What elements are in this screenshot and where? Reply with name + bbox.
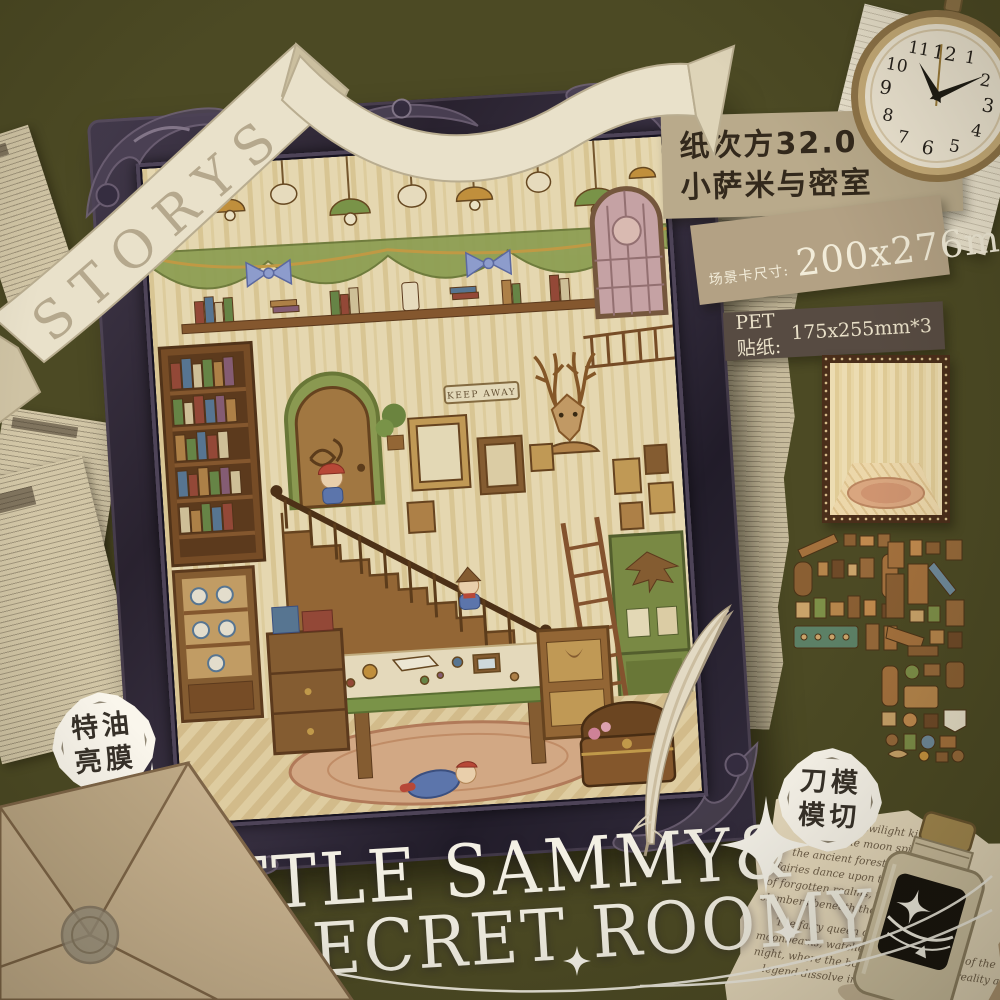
ribbon-banner-text: STORYS [21, 101, 299, 354]
scene-card-preview [822, 355, 950, 523]
sticker-sheet-2 [884, 538, 968, 660]
sticker-sheet-3 [880, 660, 970, 764]
envelope [0, 755, 360, 1000]
diecut-badge-line1: 刀模 [799, 765, 863, 802]
pocket-watch: 12 1 2 3 4 5 6 7 8 9 10 11 [832, 0, 1000, 198]
svg-text:11: 11 [906, 37, 931, 60]
scene-card-wallpaper [830, 363, 942, 515]
svg-text:10: 10 [884, 54, 909, 77]
poster-canvas: KEEP AWAY [0, 0, 1000, 1000]
pet-size-value: 175x255mm*3 [791, 315, 933, 344]
scene-card-rug [847, 477, 925, 509]
scene-size-value: 200x276mm [794, 213, 1000, 285]
svg-text:12: 12 [931, 41, 959, 67]
storys-ribbon: STORYS [0, 0, 760, 460]
